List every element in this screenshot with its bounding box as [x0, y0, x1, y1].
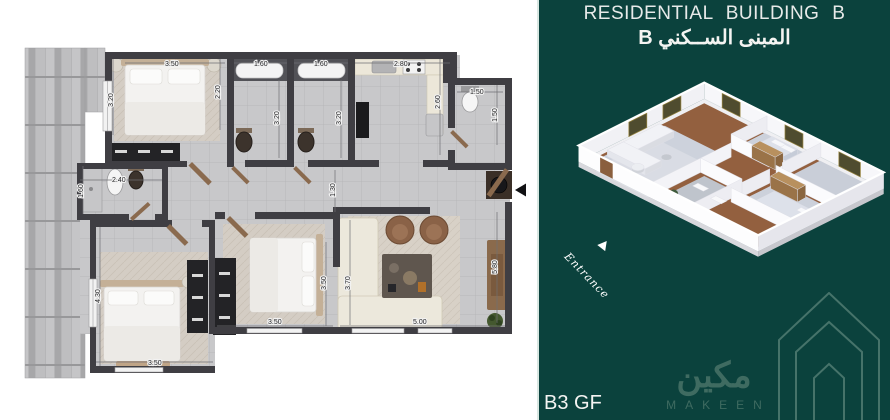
info-panel: RESIDENTIAL BUILDING B المبنى الســكني B	[537, 0, 890, 420]
render-3d	[540, 58, 890, 294]
floor-plan-2d: 3.50 1.60 1.60 2.80 3.20 2.20 3.20 3.20 …	[20, 30, 540, 408]
dim-label: 2.40	[112, 177, 126, 184]
dim-label: 3.70	[345, 276, 352, 290]
coffee-table-3d	[661, 154, 672, 160]
dim-label: 3.20	[336, 111, 343, 125]
unit-label: B3 GF	[544, 392, 602, 415]
dim-label: 2.80	[394, 61, 408, 68]
bed3-headboard	[316, 234, 323, 316]
dim-label: 3.50	[165, 61, 179, 68]
bed2-headboard	[100, 280, 184, 287]
building-title: RESIDENTIAL BUILDING B	[539, 3, 890, 25]
dim-label: 1.50	[470, 89, 484, 96]
dim-label: 5.80	[492, 260, 499, 274]
dim-label: 1.60	[254, 61, 268, 68]
dim-label: 3.50	[148, 360, 162, 367]
fridge	[426, 114, 443, 136]
logo-arabic-text: مكين	[651, 357, 777, 396]
poster-canvas: 3.50 1.60 1.60 2.80 3.20 2.20 3.20 3.20 …	[0, 0, 890, 420]
dim-label: 2.60	[435, 95, 442, 109]
building-title-arabic: المبنى الســكني B	[539, 25, 890, 50]
entrance-arrow-icon	[515, 184, 526, 197]
arch-watermark-icon	[776, 292, 886, 420]
dim-label: 3.20	[274, 111, 281, 125]
dim-label: 3.20	[108, 93, 115, 107]
dim-label: 1.60	[314, 61, 328, 68]
dim-label: 1.50	[492, 108, 499, 122]
dim-label: 1.60	[78, 184, 85, 198]
dim-label: 5.00	[413, 319, 427, 326]
dim-label: 4.30	[95, 289, 102, 303]
makeen-logo: مكين MAKEEN	[651, 357, 777, 413]
dim-label: 3.50	[321, 276, 328, 290]
ottoman-3d	[632, 163, 645, 170]
dim-label: 3.50	[268, 319, 282, 326]
toilet	[236, 132, 252, 152]
logo-latin-text: MAKEEN	[651, 398, 777, 412]
dim-label: 1.30	[330, 183, 337, 197]
kitchen-panel	[356, 102, 369, 138]
toilet	[298, 132, 314, 152]
dim-label: 2.20	[215, 85, 222, 99]
